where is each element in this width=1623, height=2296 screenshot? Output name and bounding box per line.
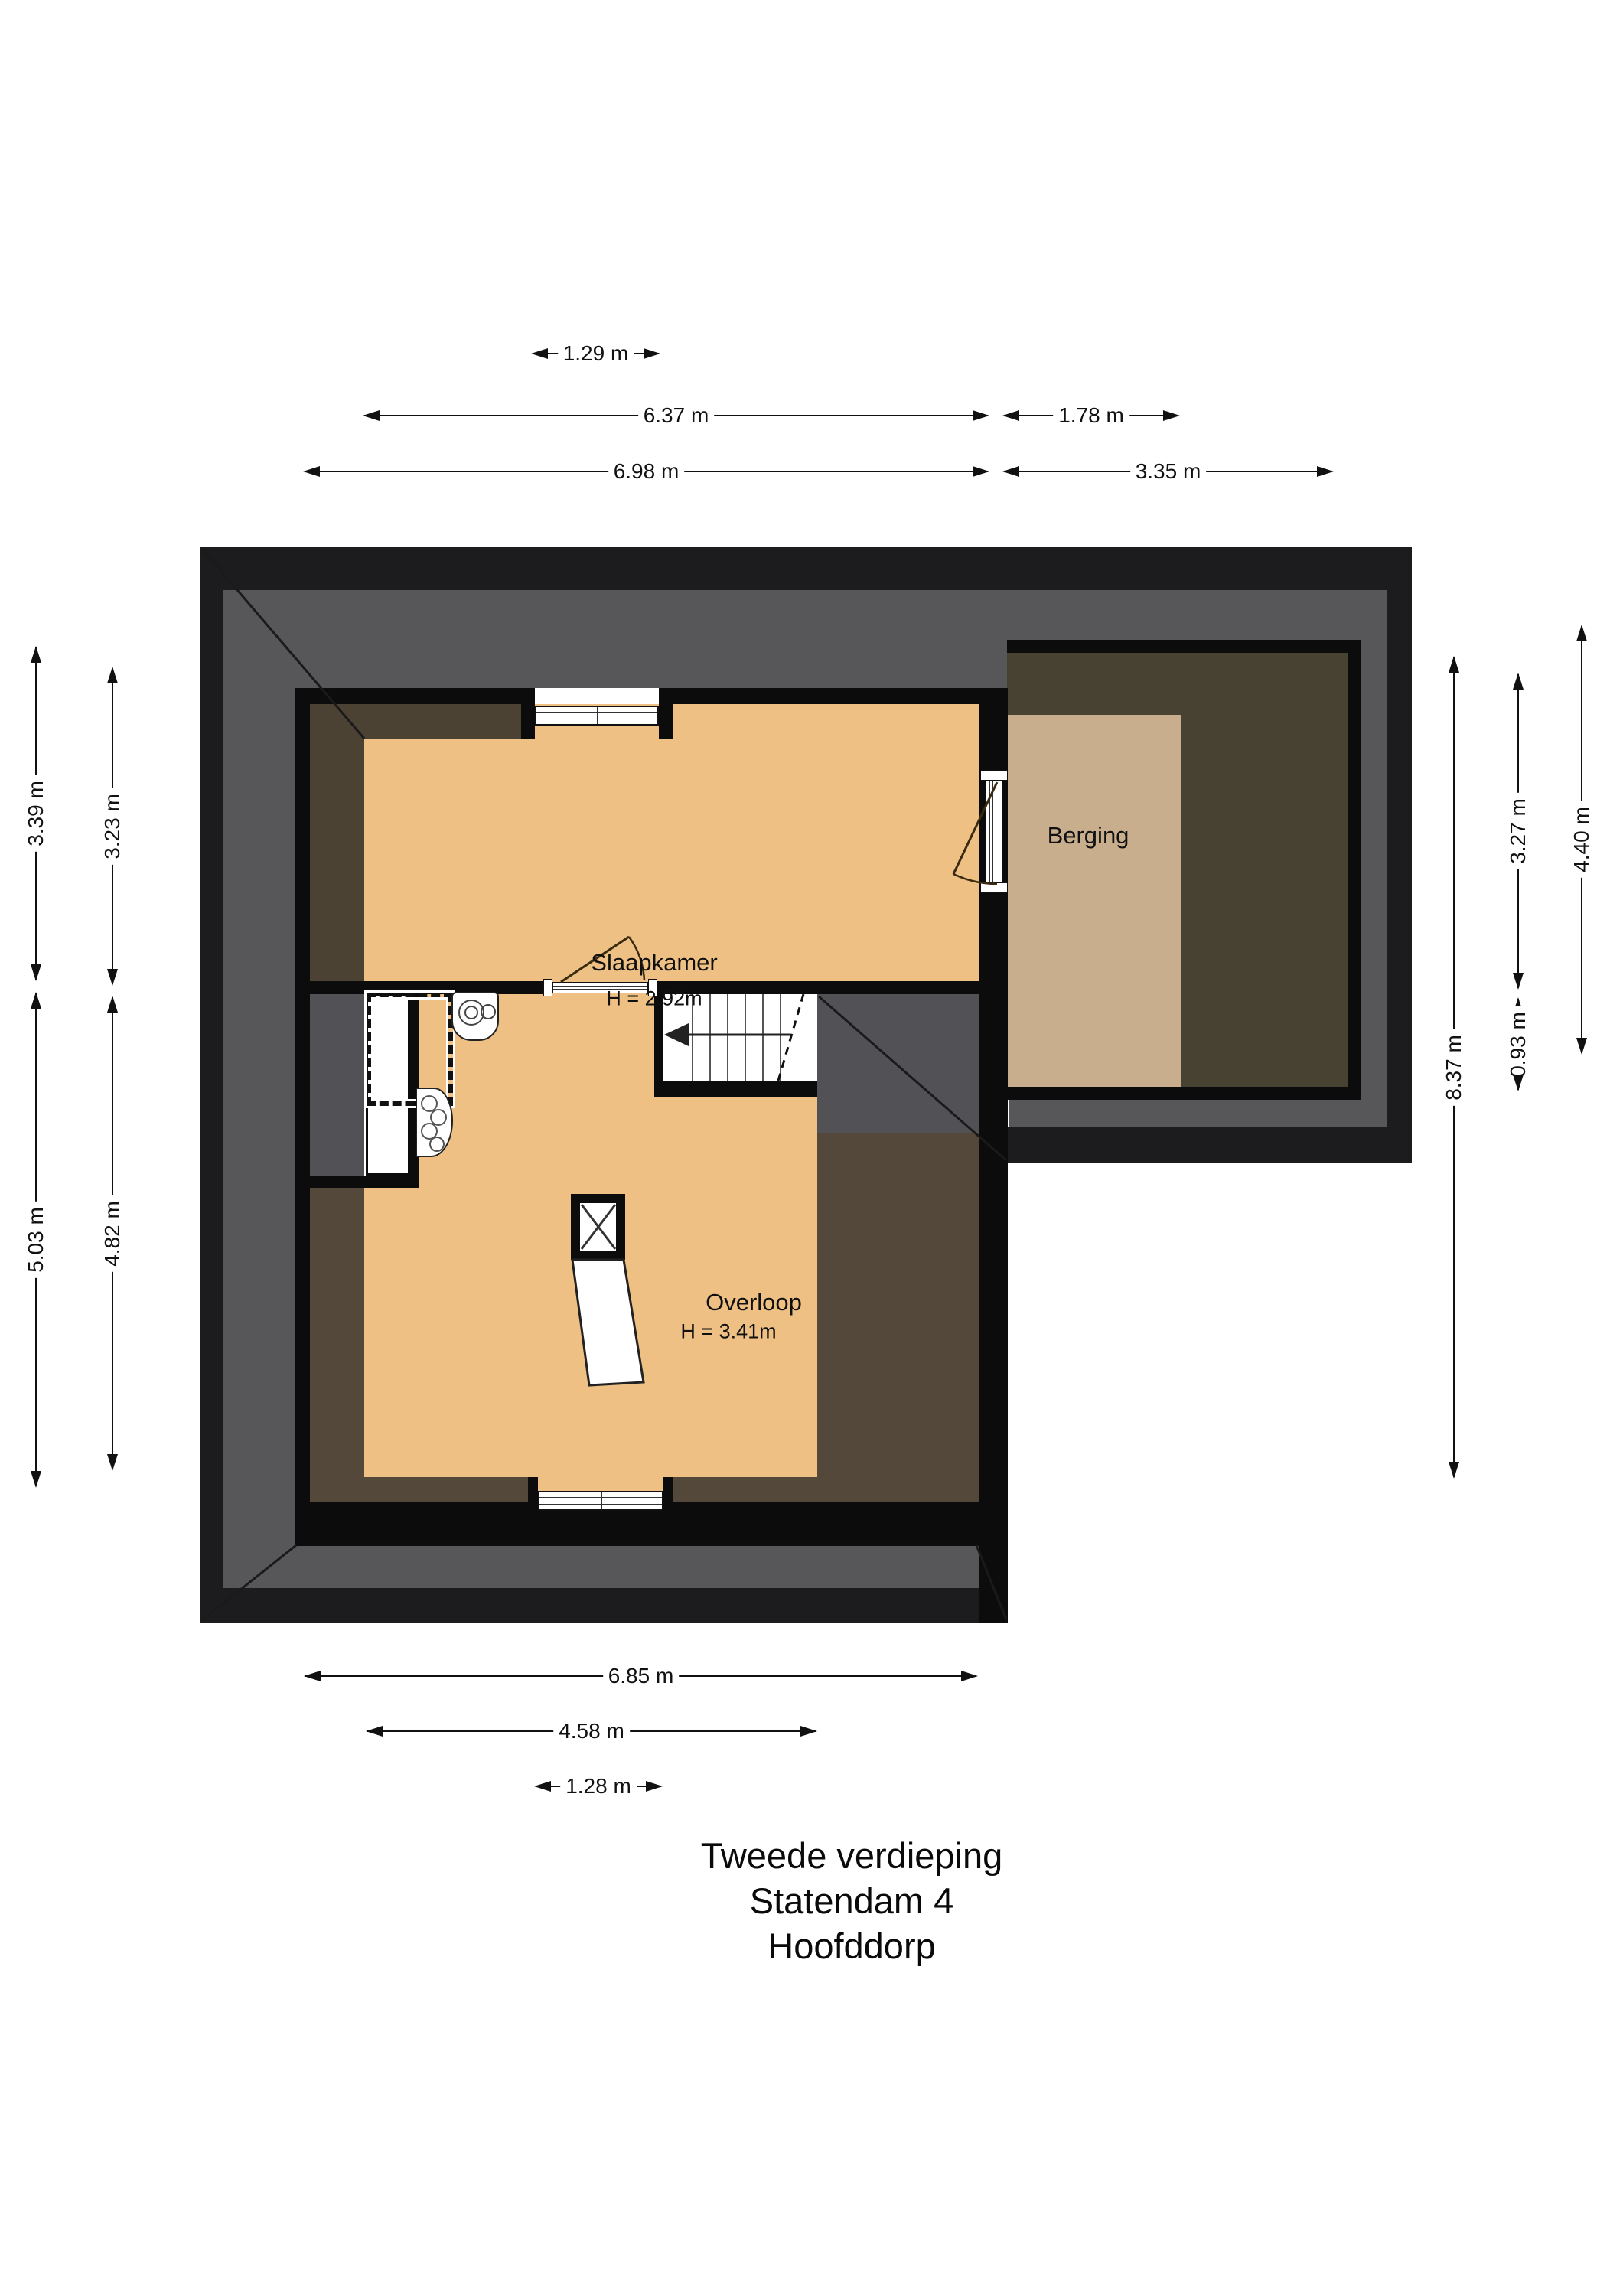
overloop-void-left xyxy=(310,994,364,1177)
boiler-dial-inner xyxy=(464,1006,478,1019)
plan-title-address: Statendam 4 xyxy=(507,1878,1196,1923)
dimension-right-void-height: 0.93 m xyxy=(1517,999,1519,1090)
dimension-right-extension-height: 4.40 m xyxy=(1581,626,1582,1053)
dimension-outer-width-extension: 3.35 m xyxy=(1004,471,1332,472)
plan-title-block: Tweede verdieping Statendam 4 Hoofddorp xyxy=(507,1833,1196,1968)
roof-band-bottom-extension xyxy=(1009,1100,1387,1127)
overloop-low-headroom-right xyxy=(817,1133,979,1546)
slaapkamer-low-headroom-top xyxy=(310,704,535,739)
room-wall-top-east xyxy=(673,688,1007,704)
room-label-slaapkamer: Slaapkamer xyxy=(591,949,717,977)
dimension-outer-width-main: 6.98 m xyxy=(305,471,988,472)
overloop-low-headroom-bottom-left xyxy=(364,1477,528,1502)
room-height-overloop: H = 3.41m xyxy=(680,1320,776,1344)
window-overloop-bottom xyxy=(538,1491,663,1511)
dimension-left-outer-upper: 3.39 m xyxy=(35,647,37,980)
chimney-shaft xyxy=(580,1203,616,1251)
door-jamb xyxy=(543,979,552,996)
door-slaapkamer-berging xyxy=(986,781,1002,882)
outer-wall-bottom-main xyxy=(200,1588,1008,1623)
dimension-window-top: 1.29 m xyxy=(533,353,659,354)
roof-band-top-extension xyxy=(1009,590,1387,640)
dimension-berging-width: 1.78 m xyxy=(1004,415,1178,416)
boiler-icon xyxy=(451,992,499,1041)
dimension-left-inner-upper: 3.23 m xyxy=(112,668,113,984)
dimension-right-berging-height: 3.27 m xyxy=(1517,674,1519,988)
extension-wall-right xyxy=(1348,640,1361,1100)
outer-wall-top xyxy=(200,547,1412,590)
boiler-pipe xyxy=(481,1004,496,1019)
dimension-left-inner-lower: 4.82 m xyxy=(112,997,113,1469)
room-label-overloop: Overloop xyxy=(706,1289,802,1316)
outer-wall-bottom-extension xyxy=(1008,1127,1412,1163)
stairwell-wall-bottom xyxy=(654,1081,817,1097)
roof-band-right-extension xyxy=(1361,590,1387,1127)
dimension-inner-width-main: 6.37 m xyxy=(364,415,988,416)
roof-band-top-main xyxy=(223,590,1009,688)
slaapkamer-low-headroom-left xyxy=(310,704,364,985)
door-jamb xyxy=(980,882,1008,893)
overloop-low-headroom-bottom-right xyxy=(673,1477,817,1502)
outer-wall-right-extension xyxy=(1387,547,1412,1163)
window-stub-bottom-left xyxy=(528,1477,538,1546)
hob-burner xyxy=(429,1137,445,1152)
dimension-overloop-width: 4.58 m xyxy=(367,1730,816,1732)
dimension-left-outer-lower: 5.03 m xyxy=(35,993,37,1486)
plan-title-floor: Tweede verdieping xyxy=(507,1833,1196,1878)
door-jamb xyxy=(980,770,1008,781)
dimension-window-bottom: 1.28 m xyxy=(536,1786,661,1787)
dimension-right-main-height: 8.37 m xyxy=(1453,657,1455,1477)
room-wall-left xyxy=(295,688,310,1546)
chimney-flue-icon xyxy=(571,1194,625,1260)
window-stub-top-right xyxy=(659,688,673,739)
overloop-floor-left xyxy=(364,1188,419,1477)
floor-under-bottom-window xyxy=(538,1477,663,1491)
stairwell-void xyxy=(817,994,981,1133)
dimension-bottom-width: 6.85 m xyxy=(305,1675,976,1677)
window-stub-bottom-right xyxy=(663,1477,673,1546)
window-slaapkamer-top xyxy=(535,706,659,726)
extension-wall-top xyxy=(1007,640,1361,653)
floorplan-canvas: Slaapkamer H = 2.92m Overloop H = 3.41m … xyxy=(0,0,1623,2296)
room-label-berging: Berging xyxy=(1048,822,1129,850)
room-wall-top-west xyxy=(295,688,535,704)
outer-wall-left xyxy=(200,547,223,1623)
wall-under-bottom-window xyxy=(538,1511,663,1546)
roof-band-left xyxy=(223,688,295,1546)
roof-band-bottom-main xyxy=(223,1546,979,1588)
berging-floor xyxy=(1007,715,1181,1087)
extension-wall-bottom xyxy=(1007,1087,1361,1100)
room-height-slaapkamer: H = 2.92m xyxy=(606,987,702,1011)
plan-title-city: Hoofddorp xyxy=(507,1923,1196,1968)
overloop-low-headroom-left xyxy=(310,1188,364,1502)
room-wall-bottom-west xyxy=(295,1502,528,1546)
room-wall-bottom-east xyxy=(673,1502,979,1546)
window-stub-top-left xyxy=(521,688,535,739)
closet-wall-bottom xyxy=(295,1176,419,1188)
